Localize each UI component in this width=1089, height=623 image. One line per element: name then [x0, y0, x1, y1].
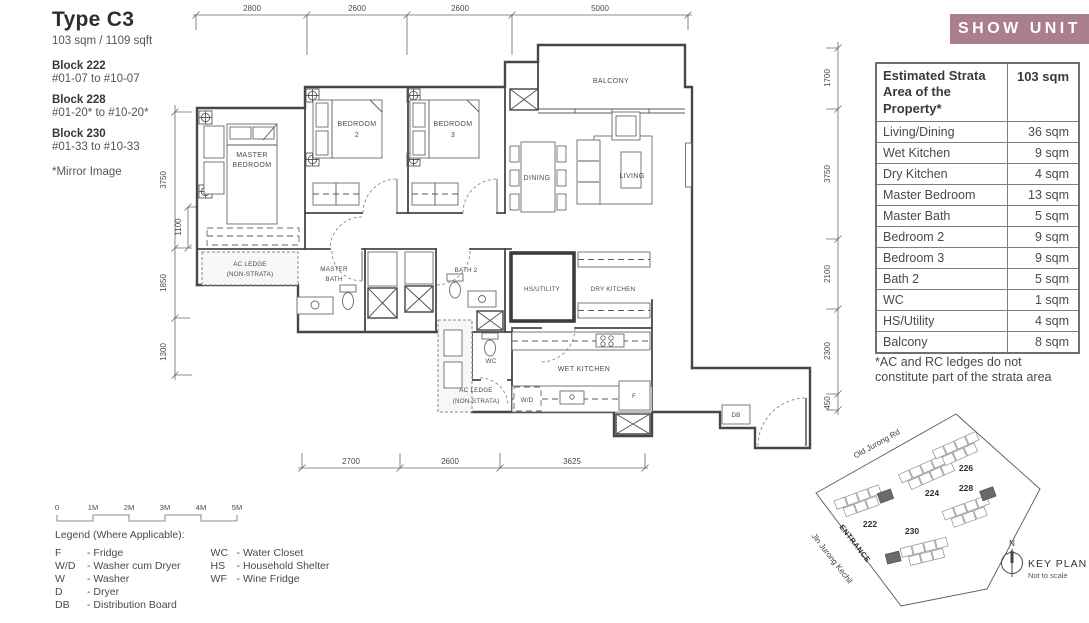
room-label-bedroom3-2: 3	[451, 132, 455, 139]
legend-title: Legend (Where Applicable):	[55, 529, 329, 541]
row-value: 4 sqm	[1008, 310, 1080, 331]
key-plan-north: N	[1009, 539, 1015, 548]
dim-left-2: 1850	[159, 274, 168, 292]
room-label-master-bedroom-2: BEDROOM	[233, 162, 272, 169]
row-value: 4 sqm	[1008, 163, 1080, 184]
dim-right-0: 1700	[823, 69, 832, 87]
room-label-balcony: BALCONY	[593, 78, 629, 85]
room-label-master-bath-2: BATH	[325, 276, 342, 283]
dim-left-3: 1300	[159, 343, 168, 361]
unit-info: Type C3 103 sqm / 1109 sqft Block 222 #0…	[52, 8, 152, 178]
legend-desc: - Household Shelter	[237, 560, 330, 572]
room-label-ac-ledge-left-2: (NON-STRATA)	[227, 271, 274, 278]
window	[686, 143, 692, 187]
row-label: Master Bedroom	[876, 184, 1008, 205]
row-label: HS/Utility	[876, 310, 1008, 331]
dim-bottom-2: 3625	[563, 457, 581, 466]
unit-area: 103 sqm / 1109 sqft	[52, 35, 152, 47]
block-230: Block 230 #01-33 to #10-33	[52, 128, 152, 153]
legend-item: HS- Household Shelter	[211, 560, 330, 572]
strata-area-table: Estimated Strata Area of the Property* 1…	[875, 62, 1080, 354]
room-label-wet-kitchen: WET KITCHEN	[558, 366, 611, 373]
room-label-bedroom2-2: 2	[355, 132, 359, 139]
legend-desc: - Dryer	[87, 586, 119, 598]
cluster-label-222: 222	[863, 519, 877, 529]
label-fridge: F	[632, 393, 636, 400]
legend-desc: - Distribution Board	[87, 599, 177, 611]
legend-abbr: HS	[211, 560, 237, 572]
scale-tick-5: 5M	[232, 503, 242, 512]
cluster-label-224: 224	[925, 488, 939, 498]
legend-abbr: D	[55, 586, 87, 598]
legend-desc: - Washer cum Dryer	[87, 560, 181, 572]
legend-column-2: WC- Water Closet HS- Household Shelter W…	[211, 547, 330, 612]
row-label: Bath 2	[876, 268, 1008, 289]
key-plan-title: KEY PLAN	[1028, 558, 1087, 570]
table-row: WC1 sqm	[876, 289, 1079, 310]
table-header-label: Estimated Strata Area of the Property*	[876, 63, 1008, 121]
row-value: 9 sqm	[1008, 226, 1080, 247]
room-label-ac-ledge-left-1: AC LEDGE	[233, 261, 266, 268]
legend-item: W- Washer	[55, 573, 181, 585]
room-label-master-bedroom-1: MASTER	[236, 152, 268, 159]
table-row: Wet Kitchen9 sqm	[876, 142, 1079, 163]
block-222: Block 222 #01-07 to #10-07	[52, 60, 152, 85]
room-label-living: LIVING	[619, 173, 644, 180]
table-row: HS/Utility4 sqm	[876, 310, 1079, 331]
table-header-row: Estimated Strata Area of the Property* 1…	[876, 63, 1079, 121]
show-unit-badge: SHOW UNIT	[950, 14, 1089, 44]
legend-item: D- Dryer	[55, 586, 181, 598]
scale-tick-3: 3M	[160, 503, 170, 512]
room-label-master-bath-1: MASTER	[320, 266, 348, 273]
floorplan-walls	[197, 45, 810, 448]
room-label-hs-utility: HS/UTILITY	[524, 286, 561, 293]
block-228: Block 228 #01-20* to #10-20*	[52, 94, 152, 119]
legend-desc: - Fridge	[87, 547, 123, 559]
block-name: Block 230	[52, 128, 152, 140]
legend-desc: - Washer	[87, 573, 129, 585]
dim-right-2: 2100	[823, 265, 832, 283]
cluster-228	[940, 487, 1001, 530]
block-list: Block 222 #01-07 to #10-07 Block 228 #01…	[52, 60, 152, 153]
room-label-dining: DINING	[524, 175, 551, 182]
block-name: Block 228	[52, 94, 152, 106]
label-db: DB	[731, 412, 740, 419]
legend-abbr: WF	[211, 573, 237, 585]
room-label-ac-ledge-bottom-2: (NON-STRATA)	[453, 398, 500, 405]
table-row: Master Bedroom13 sqm	[876, 184, 1079, 205]
key-plan-road-top: Old Jurong Rd	[852, 427, 901, 460]
row-value: 5 sqm	[1008, 268, 1080, 289]
mirror-image-note: *Mirror Image	[52, 166, 152, 178]
scale-tick-4: 4M	[196, 503, 206, 512]
table-row: Bath 25 sqm	[876, 268, 1079, 289]
legend-abbr: W	[55, 573, 87, 585]
block-name: Block 222	[52, 60, 152, 72]
cluster-label-230: 230	[905, 526, 919, 536]
cluster-222	[834, 481, 894, 518]
legend-item: DB- Distribution Board	[55, 599, 181, 611]
row-label: WC	[876, 289, 1008, 310]
row-value: 9 sqm	[1008, 142, 1080, 163]
room-label-bedroom2-1: BEDROOM	[338, 121, 377, 128]
strata-footnote: *AC and RC ledges do not constitute part…	[875, 355, 1073, 386]
legend-abbr: WC	[211, 547, 237, 559]
room-label-bath2: BATH 2	[455, 267, 478, 274]
room-label-wc: WC	[486, 358, 497, 365]
row-label: Bedroom 2	[876, 226, 1008, 247]
legend-desc: - Wine Fridge	[237, 573, 300, 585]
dim-left-0: 3750	[159, 171, 168, 189]
dim-top-0: 2800	[243, 4, 261, 13]
room-label-ac-ledge-bottom-1: AC LEDGE	[459, 387, 492, 394]
dim-right-4: 450	[823, 396, 832, 410]
table-row: Dry Kitchen4 sqm	[876, 163, 1079, 184]
row-value: 1 sqm	[1008, 289, 1080, 310]
dim-top-3: 5000	[591, 4, 609, 13]
row-value: 9 sqm	[1008, 247, 1080, 268]
row-value: 5 sqm	[1008, 205, 1080, 226]
legend-item: F- Fridge	[55, 547, 181, 559]
legend-item: WC- Water Closet	[211, 547, 330, 559]
room-label-dry-kitchen: DRY KITCHEN	[591, 286, 636, 293]
legend-item: WF- Wine Fridge	[211, 573, 330, 585]
legend-column-1: F- Fridge W/D- Washer cum Dryer W- Washe…	[55, 547, 181, 612]
room-label-bedroom3-1: BEDROOM	[434, 121, 473, 128]
table-row: Bedroom 39 sqm	[876, 247, 1079, 268]
row-label: Balcony	[876, 331, 1008, 353]
block-levels: #01-07 to #10-07	[52, 73, 152, 85]
table-header-value: 103 sqm	[1008, 63, 1080, 121]
cluster-label-226: 226	[959, 463, 973, 473]
legend-abbr: W/D	[55, 560, 87, 572]
dim-bottom-1: 2600	[441, 457, 459, 466]
dim-right-3: 2300	[823, 342, 832, 360]
legend-abbr: F	[55, 547, 87, 559]
row-label: Dry Kitchen	[876, 163, 1008, 184]
legend-abbr: DB	[55, 599, 87, 611]
table-row: Master Bath5 sqm	[876, 205, 1079, 226]
row-value: 36 sqm	[1008, 121, 1080, 142]
row-label: Bedroom 3	[876, 247, 1008, 268]
unit-type-title: Type C3	[52, 8, 152, 32]
row-value: 8 sqm	[1008, 331, 1080, 353]
dim-top-2: 2600	[451, 4, 469, 13]
table-row: Bedroom 29 sqm	[876, 226, 1079, 247]
legend: Legend (Where Applicable): F- Fridge W/D…	[55, 529, 329, 612]
dim-bottom-0: 2700	[342, 457, 360, 466]
cluster-label-228: 228	[959, 483, 973, 493]
block-levels: #01-20* to #10-20*	[52, 107, 152, 119]
legend-desc: - Water Closet	[237, 547, 304, 559]
dim-right-1: 3750	[823, 165, 832, 183]
scale-tick-0: 0	[55, 503, 59, 512]
brochure-page: 2800 2600 2600 5000 3750 1100 1850 1300 …	[0, 0, 1089, 623]
north-arrow-icon	[1002, 549, 1023, 577]
row-value: 13 sqm	[1008, 184, 1080, 205]
row-label: Master Bath	[876, 205, 1008, 226]
dim-top-1: 2600	[348, 4, 366, 13]
dim-left-1: 1100	[174, 218, 183, 236]
row-label: Wet Kitchen	[876, 142, 1008, 163]
cluster-230	[885, 537, 951, 571]
scale-tick-2: 2M	[124, 503, 134, 512]
row-label: Living/Dining	[876, 121, 1008, 142]
scale-tick-1: 1M	[88, 503, 98, 512]
table-row: Balcony8 sqm	[876, 331, 1079, 353]
legend-item: W/D- Washer cum Dryer	[55, 560, 181, 572]
scale-bar: 0 1M 2M 3M 4M 5M	[55, 503, 242, 521]
key-plan: Old Jurong Rd Jln Jurong Kechil ENTRANCE	[810, 414, 1088, 606]
key-plan-note: Not to scale	[1028, 571, 1068, 580]
block-levels: #01-33 to #10-33	[52, 141, 152, 153]
table-row: Living/Dining36 sqm	[876, 121, 1079, 142]
label-wd: W/D	[521, 397, 534, 404]
